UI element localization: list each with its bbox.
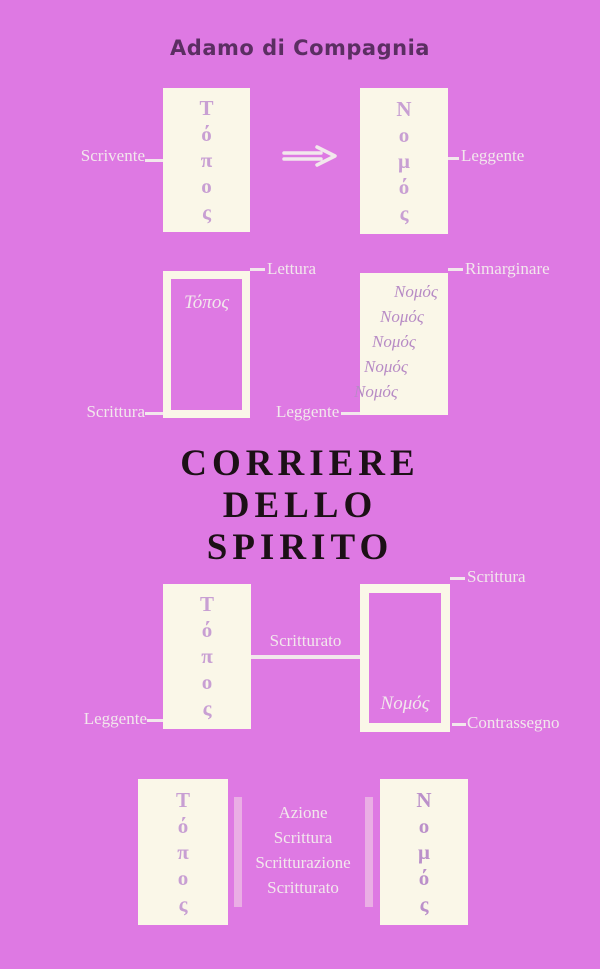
author-name: Adamo di Compagnia <box>0 36 600 60</box>
diagram2-bottom-right-label: Leggente <box>276 403 339 422</box>
nomos-word: Νομός <box>372 329 448 354</box>
diagram3-topos-box: Τ ό π ο ς <box>163 584 251 729</box>
diagram3-scrittura-connector-line <box>450 577 465 580</box>
topos-vertical-word: Τ ό π ο ς <box>163 584 251 729</box>
diagram4-center-terms: Azione Scrittura Scritturazione Scrittur… <box>230 800 376 900</box>
nomos-repeated-words: Νομός Νομός Νομός Νομός Νομός <box>360 273 448 404</box>
greek-letter: ς <box>420 894 429 915</box>
term-scritturazione: Scritturazione <box>230 850 376 875</box>
diagram1-right-label: Leggente <box>461 147 524 166</box>
diagram1-topos-box: Τ ό π ο ς <box>163 88 250 232</box>
greek-letter: Ν <box>396 99 411 120</box>
greek-letter: Τ <box>200 594 214 615</box>
nomos-vertical-word: Ν ο μ ό ς <box>380 779 468 925</box>
title-line: DELLO <box>0 485 600 527</box>
term-scrittura: Scrittura <box>230 825 376 850</box>
title-line: SPIRITO <box>0 527 600 569</box>
greek-letter: ό <box>201 124 212 145</box>
term-azione: Azione <box>230 800 376 825</box>
nomos-word: Νομός <box>364 354 448 379</box>
greek-letter: ο <box>202 672 213 693</box>
diagram3-middle-label: Scritturato <box>251 632 360 651</box>
diagram2-leggente-connector-line <box>341 412 360 415</box>
double-right-arrow-icon <box>281 143 339 174</box>
diagram2-nomos-box: Νομός Νομός Νομός Νομός Νομός <box>360 273 448 415</box>
nomos-vertical-word: Ν ο μ ό ς <box>360 88 448 234</box>
topos-vertical-word: Τ ό π ο ς <box>138 779 228 925</box>
greek-letter: Ν <box>416 790 431 811</box>
diagram4-topos-box: Τ ό π ο ς <box>138 779 228 925</box>
diagram1-right-connector-line <box>448 157 459 160</box>
greek-letter: μ <box>418 842 430 863</box>
nomos-word: Νομός <box>394 279 448 304</box>
diagram4-nomos-box: Ν ο μ ό ς <box>380 779 468 925</box>
nomos-word: Νομός <box>354 379 448 404</box>
diagram2-top-right-label: Rimarginare <box>465 260 550 279</box>
diagram3-top-right-label: Scrittura <box>467 568 526 587</box>
diagram2-top-left-label: Lettura <box>267 260 316 279</box>
diagram2-lettura-connector-line <box>250 268 265 271</box>
topos-word: Τόπος <box>171 292 242 314</box>
nomos-word: Νομός <box>369 693 441 715</box>
diagram2-topos-outline-box: Τόπος <box>163 271 250 418</box>
greek-letter: ς <box>203 698 212 719</box>
diagram2-rimarginare-connector-line <box>448 268 463 271</box>
greek-letter: ς <box>400 203 409 224</box>
diagram1-left-connector-line <box>145 159 163 162</box>
diagram1-left-label: Scrivente <box>75 147 145 166</box>
greek-letter: ο <box>201 176 212 197</box>
term-scritturato: Scritturato <box>230 875 376 900</box>
topos-vertical-word: Τ ό π ο ς <box>163 88 250 232</box>
diagram2-scrittura-connector-line <box>145 412 163 415</box>
greek-letter: μ <box>398 151 410 172</box>
book-title: CORRIERE DELLO SPIRITO <box>0 443 600 569</box>
book-cover: Adamo di Compagnia Scrivente Τ ό π ο ς Ν… <box>0 0 600 969</box>
diagram3-contrassegno-connector-line <box>452 723 466 726</box>
greek-letter: ό <box>178 816 189 837</box>
title-line: CORRIERE <box>0 443 600 485</box>
diagram3-nomos-outline-box: Νομός <box>360 584 450 732</box>
diagram2-bottom-left-label: Scrittura <box>83 403 145 422</box>
greek-letter: π <box>201 646 213 667</box>
greek-letter: ό <box>399 177 410 198</box>
diagram3-leggente-connector-line <box>147 719 163 722</box>
diagram4-right-divider-bar <box>365 797 373 907</box>
diagram3-bottom-left-label: Leggente <box>80 710 147 729</box>
greek-letter: ο <box>419 816 430 837</box>
greek-letter: ς <box>202 202 211 223</box>
diagram1-nomos-box: Ν ο μ ό ς <box>360 88 448 234</box>
greek-letter: π <box>177 842 189 863</box>
greek-letter: ο <box>399 125 410 146</box>
greek-letter: ο <box>178 868 189 889</box>
greek-letter: Τ <box>176 790 190 811</box>
nomos-word: Νομός <box>380 304 448 329</box>
diagram3-bottom-right-label: Contrassegno <box>467 714 560 733</box>
greek-letter: ς <box>179 894 188 915</box>
greek-letter: Τ <box>199 98 213 119</box>
greek-letter: ό <box>202 620 213 641</box>
greek-letter: ό <box>419 868 430 889</box>
diagram3-middle-connector-line <box>251 655 360 659</box>
greek-letter: π <box>201 150 213 171</box>
